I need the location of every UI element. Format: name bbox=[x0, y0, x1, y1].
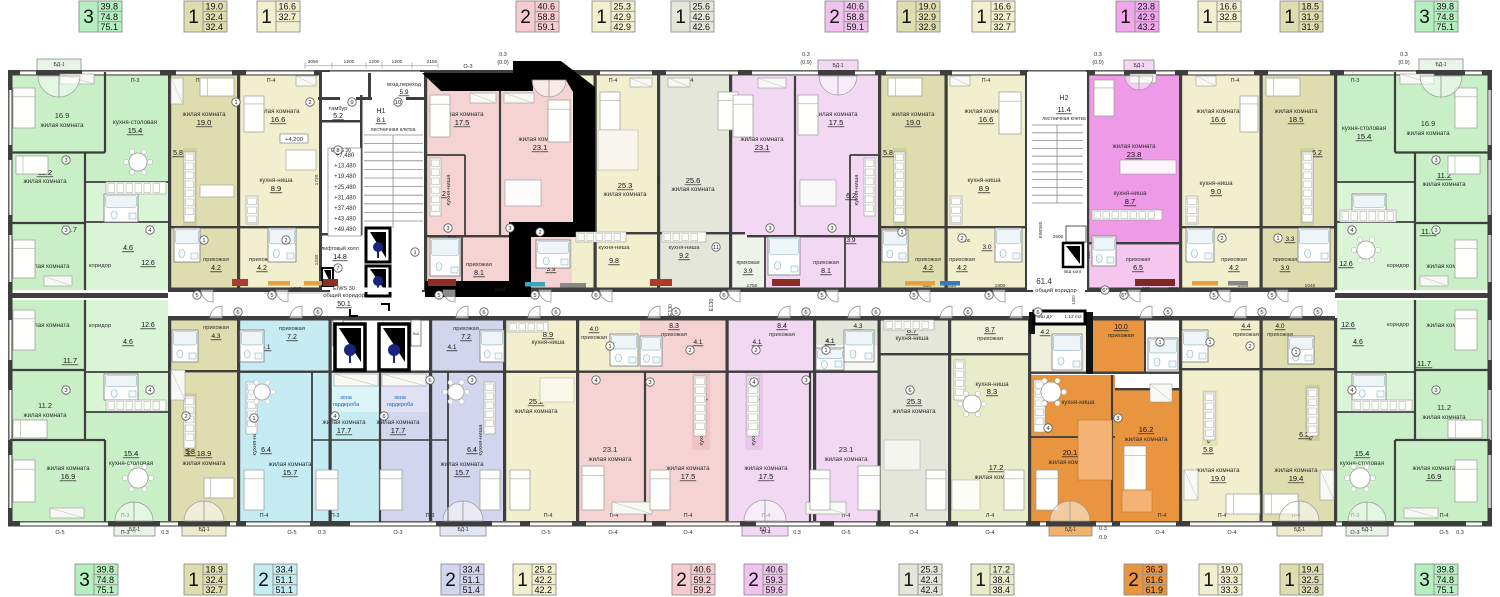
svg-text:кухня-столовая: кухня-столовая bbox=[113, 119, 157, 126]
svg-text:42.9: 42.9 bbox=[1138, 12, 1156, 22]
svg-text:жилая комната: жилая комната bbox=[322, 419, 366, 426]
svg-text:40.6: 40.6 bbox=[766, 565, 784, 575]
svg-text:О-4: О-4 bbox=[608, 530, 617, 536]
svg-text:ВШ копт: ВШ копт bbox=[1064, 269, 1081, 274]
svg-text:51.4: 51.4 bbox=[463, 585, 481, 595]
svg-text:0.3: 0.3 bbox=[793, 530, 801, 536]
svg-text:кухня-ниша: кухня-ниша bbox=[478, 424, 484, 456]
svg-text:0.3: 0.3 bbox=[161, 530, 169, 536]
svg-text:19.0: 19.0 bbox=[919, 2, 937, 12]
svg-text:(0.9): (0.9) bbox=[1092, 60, 1103, 66]
svg-text:5.8: 5.8 bbox=[173, 150, 183, 157]
svg-text:прихожая: прихожая bbox=[279, 326, 305, 332]
svg-text:0.3: 0.3 bbox=[1094, 52, 1102, 58]
svg-text:5.8: 5.8 bbox=[883, 150, 893, 157]
svg-text:39.8: 39.8 bbox=[1437, 2, 1455, 12]
svg-text:1: 1 bbox=[824, 348, 827, 354]
svg-text:74.8: 74.8 bbox=[1437, 575, 1455, 585]
svg-text:1: 1 bbox=[975, 570, 986, 591]
svg-text:0.3: 0.3 bbox=[1400, 52, 1408, 58]
svg-text:75.1: 75.1 bbox=[1437, 22, 1455, 32]
svg-text:6.2: 6.2 bbox=[846, 193, 856, 200]
svg-text:12.6: 12.6 bbox=[141, 260, 155, 267]
svg-text:16.6: 16.6 bbox=[994, 2, 1012, 12]
svg-text:39.8: 39.8 bbox=[1437, 565, 1455, 575]
svg-text:75.1: 75.1 bbox=[1437, 585, 1455, 595]
svg-text:5: 5 bbox=[1212, 293, 1215, 299]
svg-text:12.6: 12.6 bbox=[141, 322, 155, 329]
svg-text:2: 2 bbox=[1220, 236, 1223, 242]
svg-text:42.9: 42.9 bbox=[614, 12, 632, 22]
svg-text:О-4: О-4 bbox=[909, 530, 918, 536]
svg-text:33.4: 33.4 bbox=[276, 565, 294, 575]
svg-text:1810: 1810 bbox=[495, 287, 506, 293]
svg-text:5.2: 5.2 bbox=[333, 113, 343, 120]
svg-text:11.2: 11.2 bbox=[1437, 403, 1451, 412]
svg-text:6.5: 6.5 bbox=[1133, 265, 1143, 272]
svg-text:зона: зона bbox=[340, 395, 353, 401]
svg-text:15.4: 15.4 bbox=[1357, 132, 1372, 141]
svg-text:кухня-ниша: кухня-ниша bbox=[446, 174, 452, 206]
svg-text:О-3: О-3 bbox=[463, 64, 472, 70]
svg-text:жилая комната: жилая комната bbox=[1274, 108, 1318, 115]
svg-text:3: 3 bbox=[648, 380, 651, 386]
svg-text:6.2: 6.2 bbox=[1312, 150, 1322, 157]
svg-text:32.4: 32.4 bbox=[206, 575, 224, 585]
svg-text:прихожая: прихожая bbox=[813, 260, 839, 266]
svg-text:4.2: 4.2 bbox=[923, 265, 933, 272]
svg-text:33.4: 33.4 bbox=[463, 565, 481, 575]
svg-text:40.6: 40.6 bbox=[694, 565, 712, 575]
svg-text:4.4: 4.4 bbox=[1241, 323, 1250, 330]
svg-text:П-3: П-3 bbox=[331, 513, 340, 519]
svg-text:О-4: О-4 bbox=[683, 530, 692, 536]
svg-text:6: 6 bbox=[236, 310, 239, 316]
svg-text:16.6: 16.6 bbox=[1220, 2, 1238, 12]
svg-text:8.7: 8.7 bbox=[985, 327, 995, 334]
svg-text:7: 7 bbox=[336, 266, 339, 272]
svg-text:32.4: 32.4 bbox=[206, 12, 224, 22]
svg-text:6.4: 6.4 bbox=[467, 447, 477, 454]
svg-text:1200: 1200 bbox=[344, 59, 355, 65]
svg-text:1500: 1500 bbox=[656, 174, 661, 185]
svg-text:О-5: О-5 bbox=[841, 530, 850, 536]
svg-text:25.3: 25.3 bbox=[921, 565, 939, 575]
svg-text:1: 1 bbox=[188, 570, 199, 591]
svg-text:6.4: 6.4 bbox=[261, 447, 271, 454]
svg-text:980: 980 bbox=[1142, 286, 1150, 291]
svg-text:61.6: 61.6 bbox=[1146, 575, 1164, 585]
svg-text:1: 1 bbox=[252, 416, 255, 422]
svg-text:0.3: 0.3 bbox=[1099, 526, 1107, 532]
svg-text:1: 1 bbox=[596, 7, 607, 28]
svg-text:3: 3 bbox=[64, 228, 67, 234]
svg-text:О-3: О-3 bbox=[393, 530, 402, 536]
svg-text:5: 5 bbox=[195, 293, 198, 299]
svg-text:кухня-ниша: кухня-ниша bbox=[854, 174, 860, 206]
svg-text:17.2: 17.2 bbox=[989, 463, 1004, 472]
svg-text:8.4: 8.4 bbox=[777, 323, 787, 330]
svg-text:25.2: 25.2 bbox=[535, 565, 553, 575]
svg-text:жилая комната: жилая комната bbox=[824, 456, 868, 463]
svg-text:5: 5 bbox=[437, 293, 440, 299]
svg-text:4.2: 4.2 bbox=[211, 265, 221, 272]
svg-text:3: 3 bbox=[446, 226, 449, 232]
svg-text:прихожая: прихожая bbox=[203, 257, 229, 263]
svg-text:11.7: 11.7 bbox=[1417, 359, 1431, 368]
svg-text:25.3: 25.3 bbox=[614, 2, 632, 12]
svg-text:БД-1: БД-1 bbox=[53, 62, 64, 68]
svg-text:8.1: 8.1 bbox=[474, 270, 484, 277]
svg-text:7.2: 7.2 bbox=[461, 334, 471, 341]
svg-text:51.1: 51.1 bbox=[276, 575, 294, 585]
svg-text:0.3: 0.3 bbox=[318, 530, 326, 536]
svg-text:1: 1 bbox=[1120, 7, 1131, 28]
svg-text:33.3: 33.3 bbox=[1221, 575, 1239, 585]
svg-text:прихожая: прихожая bbox=[1233, 332, 1259, 338]
svg-text:1: 1 bbox=[1203, 570, 1214, 591]
svg-text:4.1: 4.1 bbox=[693, 339, 702, 346]
svg-text:59.3: 59.3 bbox=[766, 575, 784, 585]
svg-text:0.3: 0.3 bbox=[499, 52, 507, 58]
svg-text:3: 3 bbox=[79, 570, 90, 591]
svg-text:гардероба: гардероба bbox=[333, 402, 360, 408]
svg-text:4.3: 4.3 bbox=[853, 323, 862, 330]
svg-text:3: 3 bbox=[1419, 7, 1430, 28]
svg-text:коридор: коридор bbox=[1387, 263, 1409, 269]
svg-text:1: 1 bbox=[608, 344, 611, 350]
svg-text:1230: 1230 bbox=[314, 254, 320, 265]
svg-text:3: 3 bbox=[804, 378, 807, 384]
svg-text:О-4: О-4 bbox=[761, 530, 770, 536]
svg-text:2: 2 bbox=[688, 348, 691, 354]
svg-text:жилая комната: жилая комната bbox=[1124, 436, 1168, 443]
svg-text:39.8: 39.8 bbox=[101, 2, 119, 12]
svg-text:42.2: 42.2 bbox=[535, 575, 553, 585]
svg-text:19.0: 19.0 bbox=[1211, 474, 1226, 483]
svg-text:16.6: 16.6 bbox=[1211, 115, 1226, 124]
svg-text:12.6: 12.6 bbox=[1339, 261, 1353, 268]
svg-text:жилая комната: жилая комната bbox=[1412, 465, 1456, 472]
svg-text:11: 11 bbox=[713, 245, 719, 251]
svg-text:П-4: П-4 bbox=[267, 78, 276, 84]
svg-text:17.7: 17.7 bbox=[337, 426, 352, 435]
svg-text:5: 5 bbox=[912, 293, 915, 299]
svg-text:1750: 1750 bbox=[1168, 286, 1179, 291]
svg-text:15.7: 15.7 bbox=[283, 468, 298, 477]
svg-text:19.0: 19.0 bbox=[906, 118, 921, 127]
svg-text:БД-1: БД-1 bbox=[832, 63, 843, 69]
svg-text:5: 5 bbox=[533, 293, 536, 299]
svg-text:2: 2 bbox=[1128, 570, 1139, 591]
svg-text:1: 1 bbox=[1276, 236, 1279, 242]
svg-text:5.8: 5.8 bbox=[185, 449, 195, 456]
svg-text:кухня-ниша: кухня-ниша bbox=[1061, 399, 1095, 406]
svg-text:32.7: 32.7 bbox=[994, 22, 1012, 32]
svg-text:17.2: 17.2 bbox=[993, 565, 1011, 575]
svg-text:2: 2 bbox=[754, 348, 757, 354]
svg-text:2: 2 bbox=[184, 414, 187, 420]
svg-text:4.6: 4.6 bbox=[123, 339, 133, 346]
svg-text:БД-1: БД-1 bbox=[198, 527, 209, 533]
svg-text:кухня-столовая: кухня-столовая bbox=[1342, 125, 1386, 132]
svg-text:(0.9): (0.9) bbox=[497, 60, 508, 66]
svg-text:16.9: 16.9 bbox=[61, 472, 76, 481]
svg-text:32.4: 32.4 bbox=[206, 22, 224, 32]
svg-text:10.0: 10.0 bbox=[1114, 324, 1128, 331]
svg-text:возд.переход: возд.переход bbox=[387, 82, 422, 88]
svg-text:EIWS60: EIWS60 bbox=[1038, 221, 1043, 238]
svg-text:4.2: 4.2 bbox=[257, 265, 267, 272]
svg-text:3: 3 bbox=[1434, 388, 1437, 394]
svg-text:кухня-ниша: кухня-ниша bbox=[895, 335, 929, 342]
svg-text:33.3: 33.3 bbox=[1221, 585, 1239, 595]
svg-text:жилая комната: жилая комната bbox=[891, 111, 935, 118]
svg-text:32.7: 32.7 bbox=[279, 12, 297, 22]
svg-text:32.8: 32.8 bbox=[1220, 12, 1238, 22]
svg-text:2: 2 bbox=[538, 230, 541, 236]
svg-text:19.0: 19.0 bbox=[197, 118, 212, 127]
svg-text:10: 10 bbox=[395, 100, 401, 106]
svg-text:тамбур: тамбур bbox=[329, 106, 348, 112]
svg-text:2150: 2150 bbox=[427, 59, 438, 65]
svg-text:25.3: 25.3 bbox=[907, 397, 922, 406]
svg-text:+37,480: +37,480 bbox=[334, 206, 357, 212]
svg-text:кухня-столовая: кухня-столовая bbox=[1340, 460, 1384, 467]
svg-text:жилая комната: жилая комната bbox=[182, 460, 226, 467]
svg-text:П-3: П-3 bbox=[1351, 78, 1360, 84]
svg-text:16.6: 16.6 bbox=[271, 115, 286, 124]
svg-text:БД-1: БД-1 bbox=[457, 527, 468, 533]
svg-text:0.3: 0.3 bbox=[1456, 530, 1464, 536]
svg-text:жилая комната: жилая комната bbox=[46, 465, 90, 472]
svg-text:74.8: 74.8 bbox=[101, 12, 119, 22]
svg-text:жилая комната: жилая комната bbox=[1406, 130, 1450, 137]
svg-text:жилая комната: жилая комната bbox=[23, 178, 67, 185]
svg-text:16.9: 16.9 bbox=[55, 111, 70, 120]
svg-text:прихожая: прихожая bbox=[977, 336, 1003, 342]
svg-text:6*: 6* bbox=[1121, 293, 1127, 299]
svg-text:8.9: 8.9 bbox=[271, 184, 281, 193]
svg-text:42.4: 42.4 bbox=[921, 575, 939, 585]
svg-text:58.8: 58.8 bbox=[538, 12, 556, 22]
svg-text:3: 3 bbox=[1434, 228, 1437, 234]
svg-text:8.9: 8.9 bbox=[979, 184, 989, 193]
svg-text:+4,200: +4,200 bbox=[285, 137, 303, 143]
svg-text:жилая комната: жилая комната bbox=[666, 465, 710, 472]
svg-text:4.2: 4.2 bbox=[957, 265, 967, 272]
svg-text:Н1: Н1 bbox=[377, 108, 386, 115]
svg-text:прихожая: прихожая bbox=[1126, 257, 1151, 263]
svg-text:1: 1 bbox=[901, 7, 912, 28]
svg-text:1: 1 bbox=[1158, 340, 1161, 346]
svg-text:38.4: 38.4 bbox=[993, 575, 1011, 585]
svg-text:9.2: 9.2 bbox=[679, 253, 689, 260]
svg-text:4.6: 4.6 bbox=[123, 245, 133, 252]
svg-text:1040: 1040 bbox=[1305, 283, 1316, 289]
svg-text:лифтовый холл: лифтовый холл bbox=[321, 245, 358, 252]
svg-text:15.4: 15.4 bbox=[128, 126, 143, 135]
svg-text:О-5: О-5 bbox=[287, 530, 296, 536]
svg-text:51.1: 51.1 bbox=[463, 575, 481, 585]
svg-text:жилая комната: жилая комната bbox=[588, 456, 632, 463]
svg-text:11.4: 11.4 bbox=[1057, 107, 1070, 114]
svg-text:74.8: 74.8 bbox=[1437, 12, 1455, 22]
svg-text:3: 3 bbox=[1434, 158, 1437, 164]
svg-text:прихожая: прихожая bbox=[1221, 257, 1247, 263]
svg-text:2: 2 bbox=[1248, 344, 1251, 350]
svg-text:18.5: 18.5 bbox=[1302, 2, 1320, 12]
svg-text:1810: 1810 bbox=[291, 286, 302, 292]
svg-text:17.7: 17.7 bbox=[391, 426, 406, 435]
svg-text:П-4: П-4 bbox=[260, 513, 269, 519]
svg-text:жилая комната: жилая комната bbox=[268, 461, 312, 468]
svg-text:16.2: 16.2 bbox=[1139, 425, 1154, 434]
svg-text:Е130: Е130 bbox=[709, 299, 715, 312]
svg-text:1720: 1720 bbox=[314, 174, 320, 185]
svg-text:32.8: 32.8 bbox=[1302, 585, 1320, 595]
svg-text:4.1: 4.1 bbox=[447, 344, 456, 351]
svg-text:БД-1: БД-1 bbox=[1294, 527, 1305, 533]
svg-text:О-3: О-3 bbox=[1350, 530, 1359, 536]
svg-text:прихожая: прихожая bbox=[915, 257, 941, 263]
svg-text:прихожая: прихожая bbox=[661, 332, 687, 338]
svg-text:8.3: 8.3 bbox=[987, 387, 997, 396]
svg-text:П-4: П-4 bbox=[982, 78, 991, 84]
svg-text:жилая комната: жилая комната bbox=[23, 412, 67, 419]
svg-text:Н2: Н2 bbox=[1060, 95, 1069, 102]
svg-text:коридор: коридор bbox=[1387, 322, 1409, 328]
svg-text:6: 6 bbox=[316, 310, 319, 316]
svg-text:19.0: 19.0 bbox=[206, 2, 224, 12]
svg-text:8.3: 8.3 bbox=[669, 323, 679, 330]
svg-text:23.1: 23.1 bbox=[533, 143, 548, 152]
svg-text:1.12 m2: 1.12 m2 bbox=[1064, 314, 1082, 320]
svg-text:40.6: 40.6 bbox=[538, 2, 556, 12]
svg-text:6: 6 bbox=[804, 310, 807, 316]
svg-text:32.9: 32.9 bbox=[919, 22, 937, 32]
svg-text:19.4: 19.4 bbox=[1302, 565, 1320, 575]
svg-text:П-4: П-4 bbox=[684, 513, 693, 519]
svg-text:4.6: 4.6 bbox=[1353, 339, 1363, 346]
svg-text:6: 6 bbox=[594, 293, 597, 299]
svg-text:1200: 1200 bbox=[392, 59, 403, 65]
svg-text:жилая комната: жилая комната bbox=[1196, 108, 1240, 115]
svg-text:42.9: 42.9 bbox=[614, 22, 632, 32]
svg-text:59.2: 59.2 bbox=[694, 585, 712, 595]
svg-text:42.6: 42.6 bbox=[693, 22, 711, 32]
svg-text:3: 3 bbox=[1116, 416, 1119, 422]
svg-text:БД-1: БД-1 bbox=[1435, 62, 1446, 68]
svg-text:6: 6 bbox=[874, 310, 877, 316]
svg-text:9.8: 9.8 bbox=[609, 258, 619, 265]
svg-text:жилая комната: жилая комната bbox=[182, 111, 226, 118]
svg-text:59.2: 59.2 bbox=[694, 575, 712, 585]
svg-text:6: 6 bbox=[1036, 310, 1039, 316]
svg-text:3.9: 3.9 bbox=[743, 268, 752, 275]
svg-text:1800: 1800 bbox=[995, 283, 1006, 289]
svg-text:1: 1 bbox=[261, 7, 272, 28]
svg-text:3.9: 3.9 bbox=[1280, 265, 1289, 272]
svg-text:5: 5 bbox=[1316, 310, 1319, 316]
svg-text:1: 1 bbox=[202, 238, 205, 244]
svg-text:58.8: 58.8 bbox=[847, 12, 865, 22]
svg-text:+31,480: +31,480 bbox=[334, 195, 357, 201]
svg-text:П-4: П-4 bbox=[1158, 513, 1167, 519]
svg-text:61.4: 61.4 bbox=[1036, 277, 1052, 286]
svg-text:4.2: 4.2 bbox=[1040, 329, 1049, 336]
svg-text:1: 1 bbox=[188, 7, 199, 28]
svg-text:15.4: 15.4 bbox=[124, 449, 139, 458]
svg-text:жилая комната: жилая комната bbox=[1112, 143, 1156, 150]
svg-text:4.1: 4.1 bbox=[752, 339, 761, 346]
svg-text:25.6: 25.6 bbox=[686, 176, 701, 185]
svg-text:1: 1 bbox=[976, 7, 987, 28]
svg-text:жилая комната: жилая комната bbox=[40, 122, 84, 129]
svg-text:19.4: 19.4 bbox=[1289, 474, 1304, 483]
svg-text:20.1: 20.1 bbox=[1063, 448, 1078, 457]
svg-text:жилая комната: жилая комната bbox=[671, 186, 715, 193]
svg-text:коридор: коридор bbox=[89, 263, 111, 269]
svg-text:59.1: 59.1 bbox=[538, 22, 556, 32]
svg-text:23.1: 23.1 bbox=[603, 445, 618, 454]
svg-text:Л-4: Л-4 bbox=[910, 513, 919, 519]
svg-text:3: 3 bbox=[830, 226, 833, 232]
svg-text:2: 2 bbox=[960, 236, 963, 242]
svg-text:прихожая: прихожая bbox=[736, 260, 759, 266]
svg-text:6: 6 bbox=[554, 310, 557, 316]
svg-text:32.7: 32.7 bbox=[206, 585, 224, 595]
svg-text:+13,480: +13,480 bbox=[334, 164, 357, 170]
svg-text:2: 2 bbox=[748, 570, 759, 591]
svg-text:0.9: 0.9 bbox=[1099, 535, 1107, 541]
svg-text:1: 1 bbox=[1284, 570, 1295, 591]
svg-text:3: 3 bbox=[470, 378, 473, 384]
svg-text:кухня-ниша: кухня-ниша bbox=[599, 245, 631, 251]
svg-text:16.9: 16.9 bbox=[1421, 119, 1436, 128]
svg-text:6: 6 bbox=[482, 310, 485, 316]
svg-text:О-4: О-4 bbox=[1227, 530, 1236, 536]
svg-text:4.0: 4.0 bbox=[1275, 323, 1284, 330]
svg-text:3: 3 bbox=[508, 226, 511, 232]
svg-text:кухня-ниша: кухня-ниша bbox=[1199, 180, 1233, 187]
svg-text:прихожая: прихожая bbox=[203, 325, 229, 331]
svg-text:П-4: П-4 bbox=[1218, 513, 1227, 519]
svg-text:+43,480: +43,480 bbox=[334, 217, 357, 223]
svg-text:14.8: 14.8 bbox=[333, 254, 347, 261]
svg-text:74.8: 74.8 bbox=[97, 575, 115, 585]
svg-text:11.2: 11.2 bbox=[38, 401, 52, 410]
svg-text:42.6: 42.6 bbox=[693, 12, 711, 22]
svg-text:6: 6 bbox=[966, 310, 969, 316]
svg-text:жилая комната: жилая комната bbox=[1196, 467, 1240, 474]
svg-text:коридор: коридор bbox=[89, 323, 111, 329]
svg-text:кухня-ниша: кухня-ниша bbox=[669, 245, 701, 251]
svg-text:16.9: 16.9 bbox=[1427, 472, 1442, 481]
svg-text:(0.9): (0.9) bbox=[1398, 60, 1409, 66]
svg-text:5: 5 bbox=[674, 310, 677, 316]
svg-text:18.5: 18.5 bbox=[1289, 115, 1304, 124]
svg-text:23.1: 23.1 bbox=[755, 143, 770, 152]
svg-text:32.7: 32.7 bbox=[994, 12, 1012, 22]
svg-text:38.4: 38.4 bbox=[993, 585, 1011, 595]
svg-text:40.6: 40.6 bbox=[847, 2, 865, 12]
svg-text:5: 5 bbox=[1260, 310, 1263, 316]
svg-text:59.1: 59.1 bbox=[847, 22, 865, 32]
svg-text:18.9: 18.9 bbox=[206, 565, 224, 575]
svg-text:лестничная клетка: лестничная клетка bbox=[1042, 116, 1086, 122]
svg-text:1: 1 bbox=[1202, 7, 1213, 28]
